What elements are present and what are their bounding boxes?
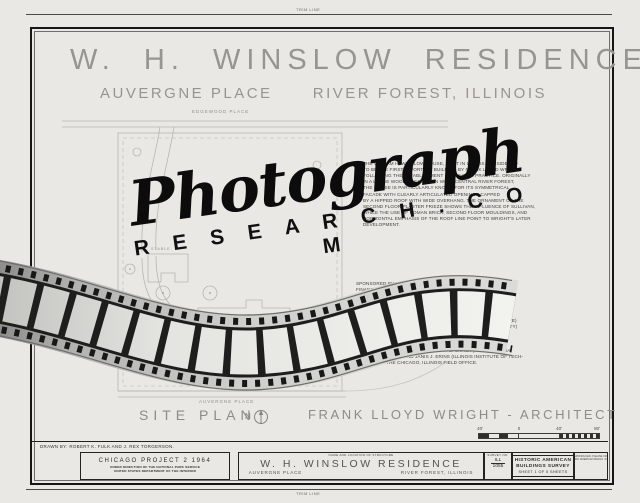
filmstrip-graphic (0, 0, 640, 503)
habs-sheet-scan: TRIM LINE TRIM LINE W. H. WINSLOW RESIDE… (0, 0, 640, 503)
